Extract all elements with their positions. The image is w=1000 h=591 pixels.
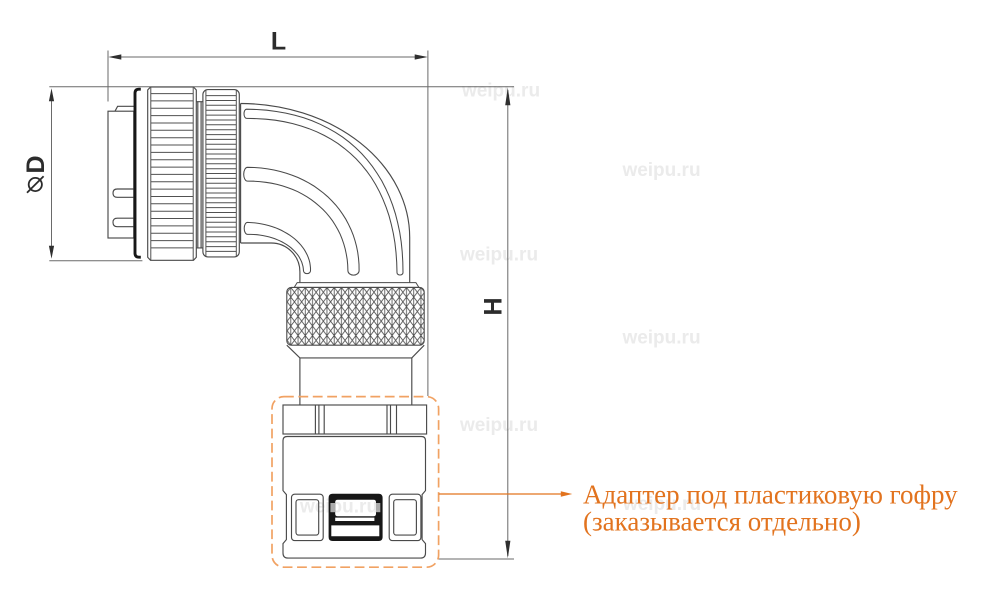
- svg-text:H: H: [480, 297, 508, 315]
- svg-text:weipu.ru: weipu.ru: [459, 245, 538, 266]
- svg-text:D: D: [22, 155, 50, 173]
- svg-text:weipu.ru: weipu.ru: [621, 160, 700, 181]
- svg-text:(заказывается отдельно): (заказывается отдельно): [583, 507, 861, 537]
- svg-text:weipu.ru: weipu.ru: [621, 328, 700, 349]
- svg-text:weipu.ru: weipu.ru: [459, 415, 538, 436]
- svg-text:weipu.ru: weipu.ru: [461, 81, 540, 102]
- svg-text:Адаптер под пластиковую гофру: Адаптер под пластиковую гофру: [583, 480, 958, 510]
- svg-text:L: L: [271, 28, 286, 56]
